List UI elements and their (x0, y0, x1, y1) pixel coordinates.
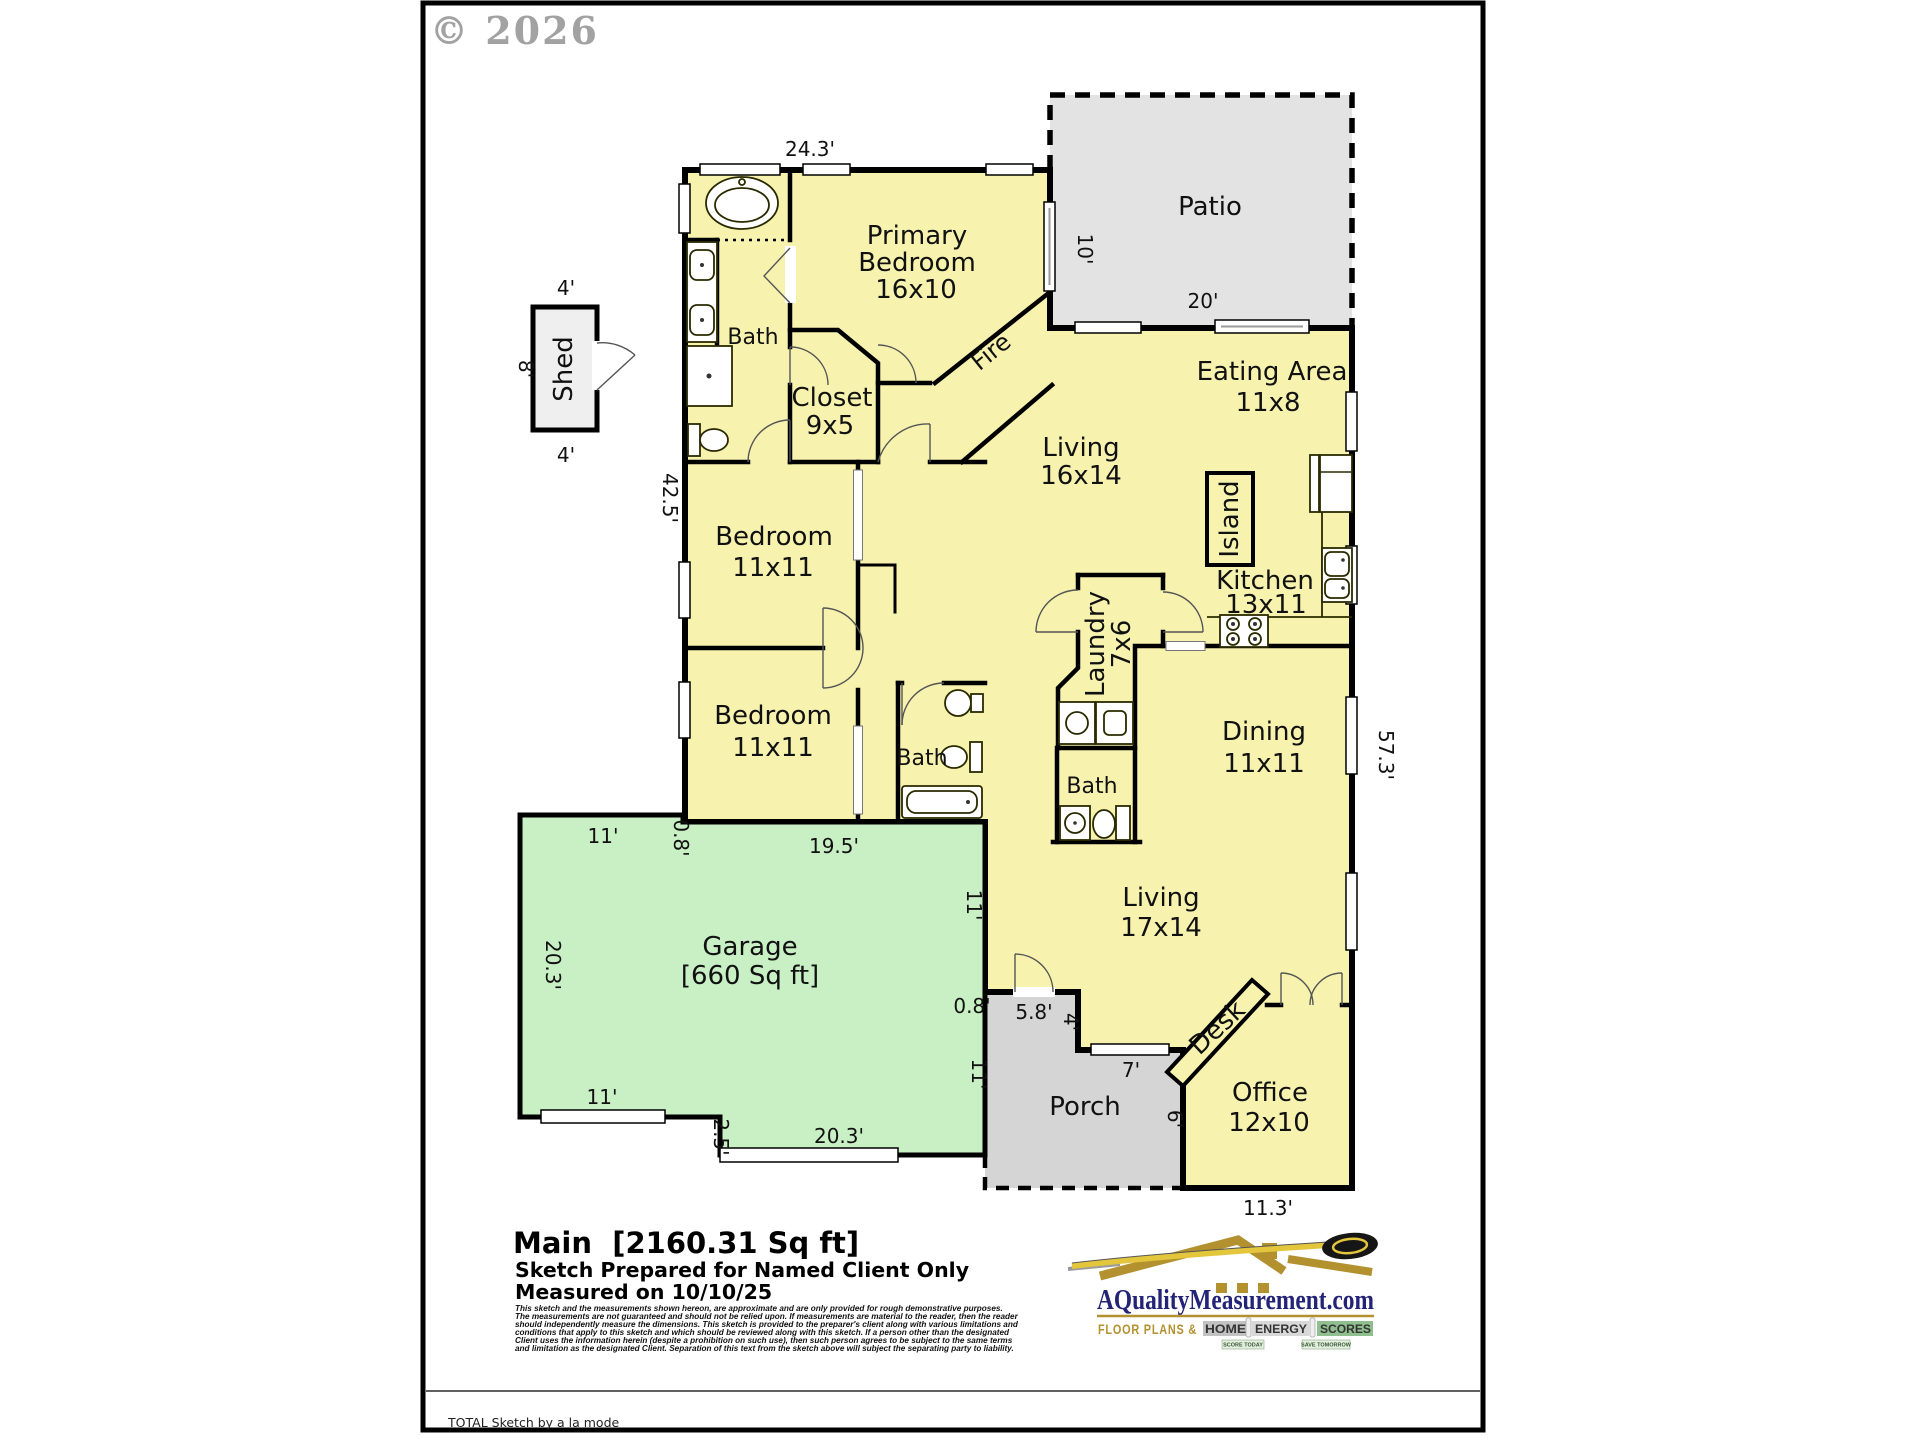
dim-office-w: 11.3' (1243, 1196, 1293, 1220)
hallbath-sink-icon (945, 690, 971, 716)
bath-bifold-gap (785, 246, 796, 303)
dim-right: 57.3' (1374, 730, 1398, 780)
dim-porch-w: 7' (1122, 1058, 1140, 1082)
kitchen-sink-drain2 (1341, 586, 1345, 590)
label-office: Office (1232, 1078, 1308, 1108)
label-living2-size: 17x14 (1120, 913, 1202, 943)
label-bedroom2: Bedroom (714, 701, 832, 731)
pocket-door-bedroom2 (854, 726, 863, 814)
label-garage-size: [660 Sq ft] (681, 961, 819, 991)
dim-top: 24.3' (785, 137, 835, 161)
label-living1-size: 16x14 (1040, 461, 1122, 491)
window-bath-left (679, 184, 690, 233)
pocket-door-dining (1166, 642, 1205, 651)
copyright-text: © 2026 (430, 8, 599, 53)
toilet1-icon (700, 429, 728, 451)
dim-garage-top: 11' (588, 824, 619, 848)
washer-icon (1059, 702, 1095, 744)
window-dining-right (1346, 697, 1357, 774)
toilet3-icon (1093, 810, 1115, 838)
logo-tagline: FLOOR PLANS & (1098, 1321, 1197, 1337)
dim-garage-right-b: 11' (967, 1059, 991, 1090)
sketch-measured: Measured on 10/10/25 (515, 1280, 772, 1304)
logo-word-energy: ENERGY (1255, 1322, 1307, 1336)
toilet1-tank (688, 424, 700, 456)
porch-door-gap (1013, 987, 1055, 997)
window-bath-top (700, 164, 780, 175)
label-patio: Patio (1178, 192, 1242, 222)
garage-door-opening (720, 1148, 898, 1162)
label-kitchen-size: 13x11 (1225, 590, 1307, 620)
sink1-drain (700, 263, 704, 267)
label-primary-1: Primary (867, 221, 967, 251)
dim-shed-top: 4' (557, 276, 575, 300)
garage-window (541, 1110, 665, 1123)
dim-left: 42.5' (658, 473, 682, 523)
label-bedroom1-size: 11x11 (732, 553, 814, 583)
label-dining-size: 11x11 (1223, 749, 1305, 779)
label-garage: Garage (702, 932, 797, 962)
kitchen-sink-drain1 (1341, 558, 1345, 562)
dim-porch-top: 5.8' (1015, 1000, 1052, 1024)
label-bedroom2-size: 11x11 (732, 733, 814, 763)
dim-garage-bottom: 20.3' (814, 1124, 864, 1148)
label-dining-bath: Bath (1066, 774, 1117, 799)
dim-garage-step: 2.5' (709, 1118, 733, 1155)
logo-word-home: HOME (1205, 1322, 1246, 1336)
label-closet-size: 9x5 (806, 411, 854, 441)
bath2-sink-drain (1073, 821, 1077, 825)
label-living2: Living (1122, 883, 1199, 913)
label-living1: Living (1042, 433, 1119, 463)
sink2-drain (700, 318, 704, 322)
shower-drain (707, 374, 712, 379)
kitchen-cabinet (1310, 455, 1319, 512)
burner3-dot (1231, 637, 1235, 641)
label-primary-size: 16x10 (875, 275, 957, 305)
sketch-prepared: Sketch Prepared for Named Client Only (515, 1258, 969, 1282)
label-dining: Dining (1222, 717, 1306, 747)
logo-word-scores: SCORES (1320, 1322, 1371, 1336)
label-hall-bath: Bath (896, 746, 947, 771)
dim-porch-h: 6' (1163, 1110, 1187, 1128)
label-primary-2: Bedroom (858, 248, 976, 278)
logo-pin1 (1246, 1318, 1251, 1337)
window-eating-top (1075, 322, 1141, 333)
pocket-door-bedroom1 (854, 470, 863, 560)
label-primary-bath: Bath (727, 325, 778, 350)
dim-shed-side: 8' (514, 360, 538, 378)
burner4-dot (1253, 637, 1257, 641)
sketch-title: Main [2160.31 Sq ft] (513, 1226, 859, 1260)
label-porch: Porch (1049, 1092, 1121, 1122)
logo-site-text: AQualityMeasurement.com (1097, 1284, 1374, 1316)
label-shed: Shed (549, 336, 579, 401)
floorplan-page: © 2026 (0, 0, 1920, 1440)
toilet2-tank (970, 742, 982, 772)
label-island: Island (1215, 480, 1245, 557)
dim-garage-jog: 0.8' (669, 819, 693, 856)
window-primary-top1 (803, 164, 850, 175)
hallbath-faucet (971, 694, 983, 712)
label-eating-size: 11x8 (1235, 388, 1300, 418)
label-laundry-size: 7x6 (1107, 620, 1137, 668)
window-eating-right (1346, 392, 1357, 451)
fridge-icon (1320, 455, 1352, 512)
window-primary-top2 (986, 164, 1033, 175)
total-sketch-credit: TOTAL Sketch by a la mode (447, 1415, 620, 1430)
window-bedroom2-left (679, 682, 690, 738)
floorplan-sketch: © 2026 (0, 0, 1920, 1440)
window-porch (1091, 1044, 1169, 1055)
disclaimer-line6: and limitation as the designated Client.… (515, 1344, 1014, 1353)
label-closet: Closet (791, 383, 872, 413)
dim-garage-side: 20.3' (541, 940, 565, 990)
logo-pin2 (1310, 1318, 1315, 1337)
dim-patio-w: 20' (1188, 289, 1219, 313)
dryer-icon (1096, 702, 1133, 744)
dim-porch-jog: 0.8' (953, 994, 990, 1018)
dim-bottom-left: 19.5' (809, 834, 859, 858)
logo-badge2-text: SAVE TOMORROW (1301, 1343, 1352, 1349)
logo-badge1-text: SCORE TODAY (1223, 1343, 1263, 1349)
dim-patio-h: 10' (1073, 234, 1097, 265)
hallbath-tub-drain (966, 800, 970, 804)
window-living-right (1346, 873, 1357, 950)
label-eating: Eating Area (1197, 357, 1348, 387)
shed-door-gap (592, 341, 603, 390)
dim-shed-bottom: 4' (557, 443, 575, 467)
burner2-dot (1253, 622, 1257, 626)
label-office-size: 12x10 (1228, 1108, 1310, 1138)
label-bedroom1: Bedroom (715, 522, 833, 552)
dim-porch-step: 4' (1059, 1013, 1083, 1031)
dim-garage-right-a: 11' (962, 890, 986, 921)
burner1-dot (1231, 622, 1235, 626)
toilet3-tank (1116, 806, 1130, 840)
dim-garage-door: 11' (587, 1085, 618, 1109)
window-bedroom1-left (679, 562, 690, 618)
